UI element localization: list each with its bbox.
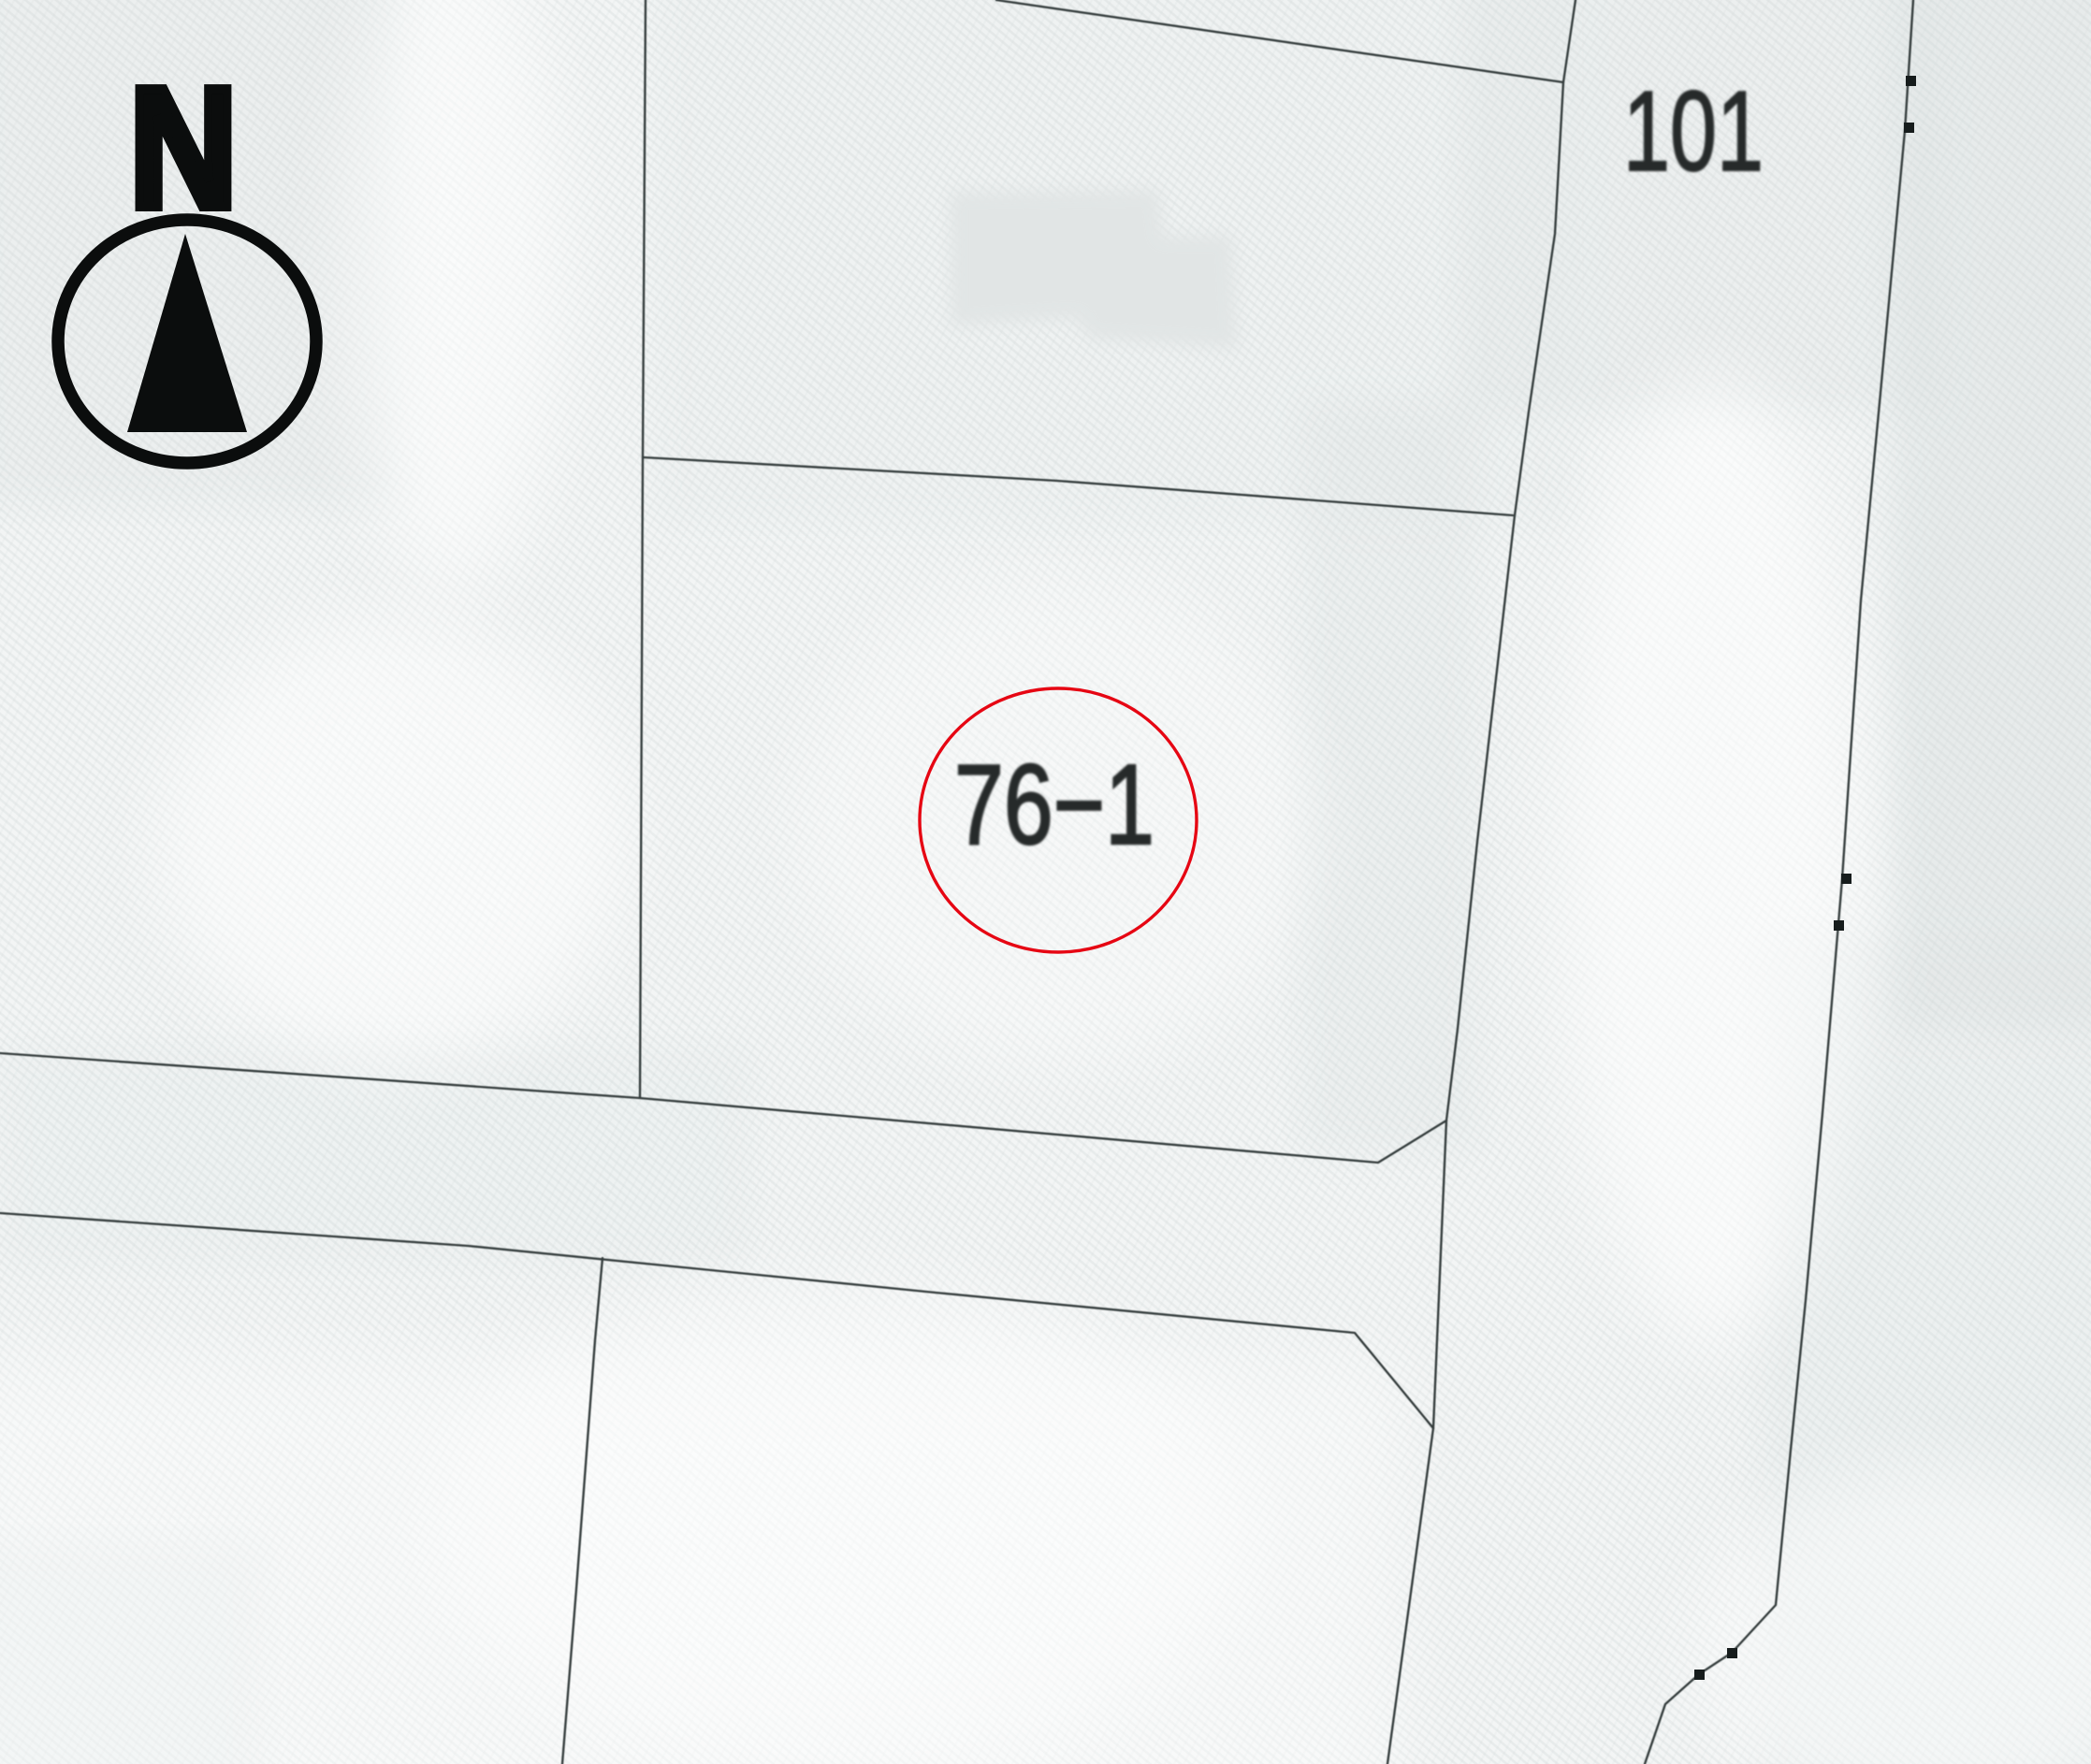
svg-text:76−1: 76−1 bbox=[954, 741, 1154, 868]
svg-text:101: 101 bbox=[1623, 67, 1764, 195]
